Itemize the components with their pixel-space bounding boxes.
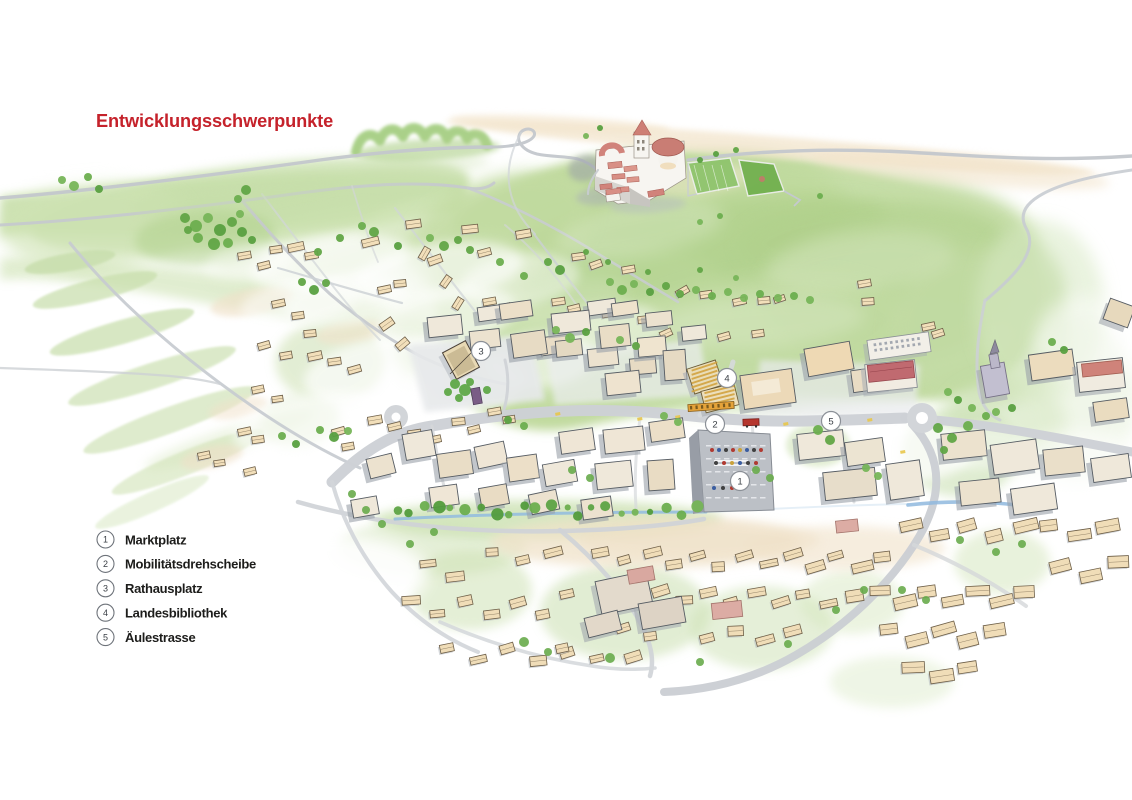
svg-text:4: 4	[724, 373, 729, 384]
svg-text:1: 1	[103, 535, 108, 545]
svg-text:Äulestrasse: Äulestrasse	[125, 630, 195, 645]
svg-text:3: 3	[103, 584, 108, 594]
svg-text:Marktplatz: Marktplatz	[125, 532, 187, 547]
svg-text:Entwicklungsschwerpunkte: Entwicklungsschwerpunkte	[96, 111, 333, 131]
svg-text:5: 5	[103, 632, 108, 642]
svg-text:2: 2	[712, 419, 717, 430]
svg-text:Rathausplatz: Rathausplatz	[125, 581, 203, 596]
svg-text:1: 1	[737, 476, 742, 487]
svg-text:5: 5	[828, 416, 833, 427]
svg-text:4: 4	[103, 608, 108, 618]
svg-text:2: 2	[103, 559, 108, 569]
svg-text:Landesbibliothek: Landesbibliothek	[125, 606, 228, 621]
svg-text:3: 3	[478, 346, 483, 357]
svg-text:Mobilitätsdrehscheibe: Mobilitätsdrehscheibe	[125, 557, 256, 572]
